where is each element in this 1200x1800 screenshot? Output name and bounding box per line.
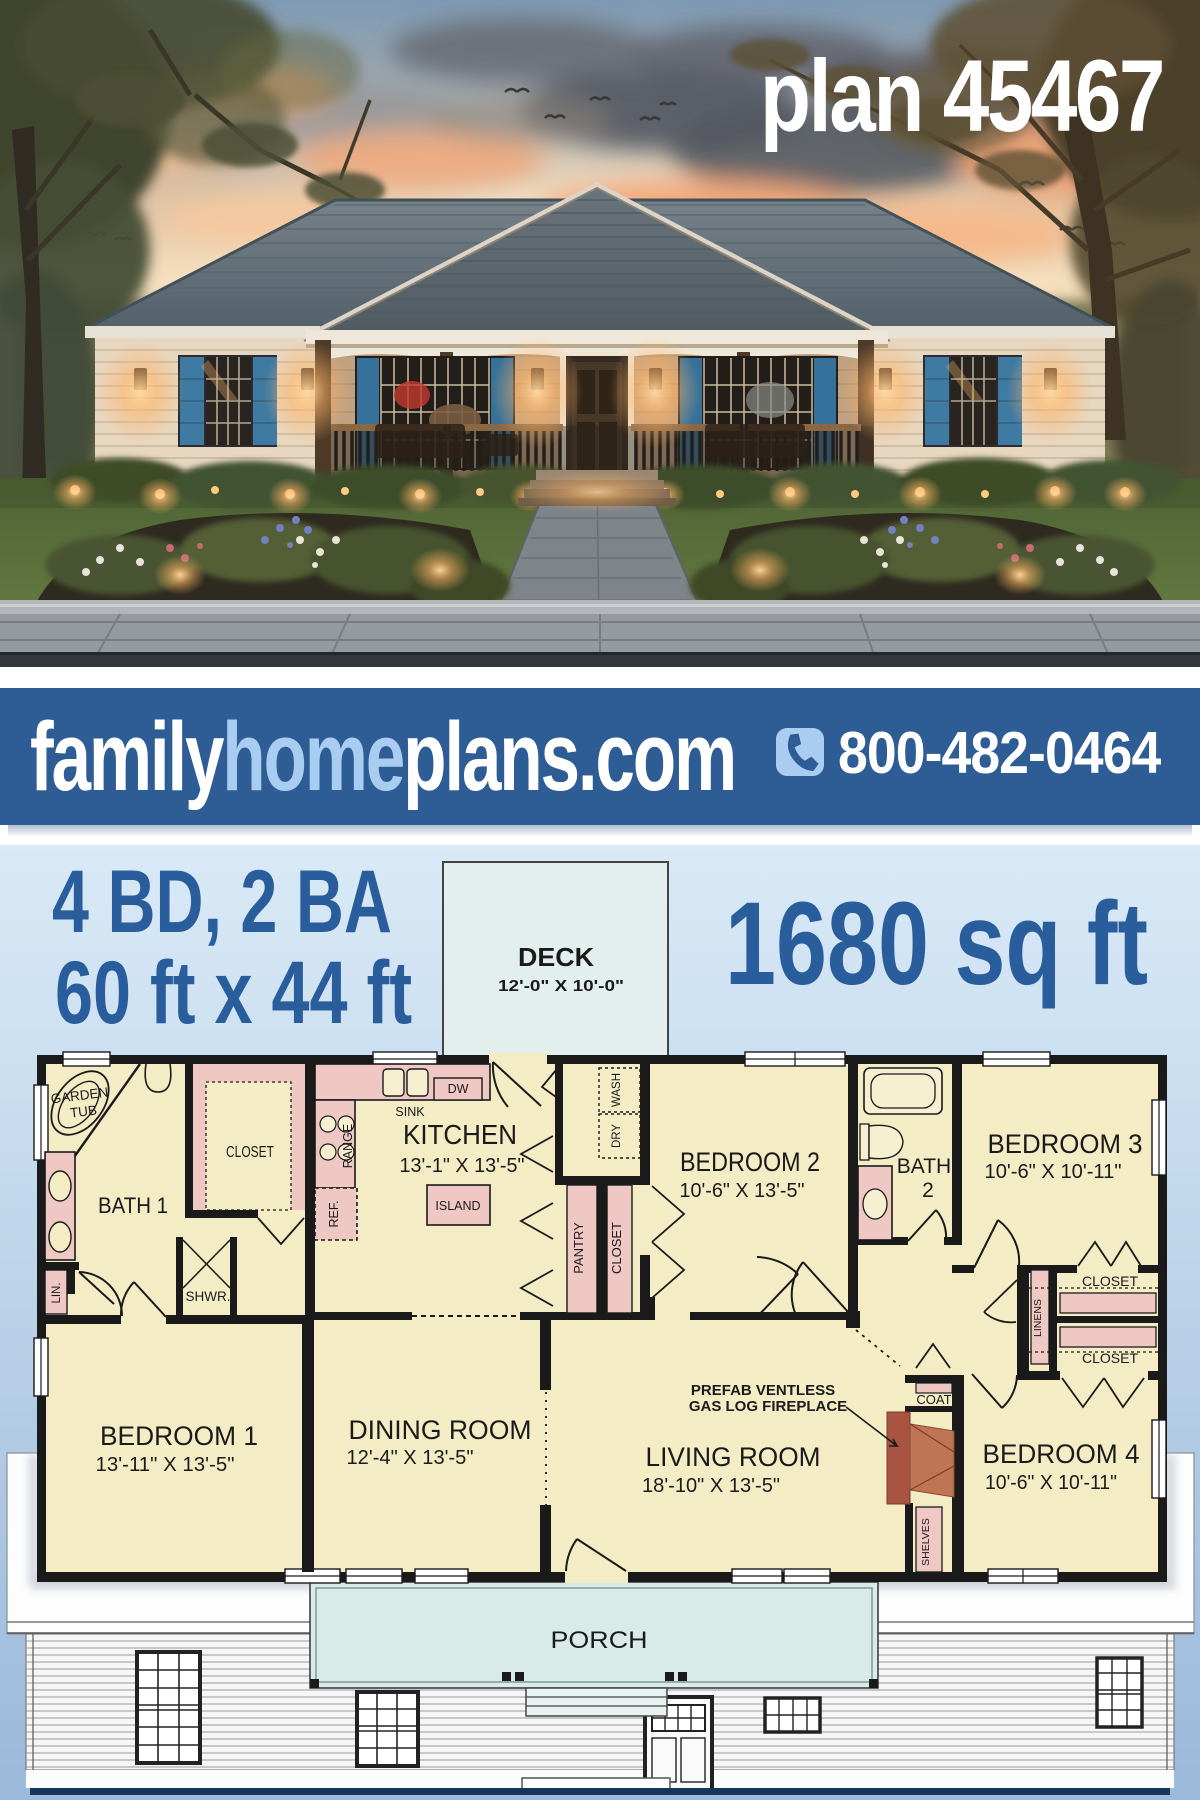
svg-text:BEDROOM 1: BEDROOM 1 xyxy=(100,1421,258,1451)
svg-text:PREFAB VENTLESS: PREFAB VENTLESS xyxy=(691,1382,835,1399)
svg-text:SHWR.: SHWR. xyxy=(186,1289,231,1304)
svg-text:BEDROOM 4: BEDROOM 4 xyxy=(983,1439,1140,1469)
svg-text:CLOSET: CLOSET xyxy=(609,1222,624,1274)
svg-text:DINING ROOM: DINING ROOM xyxy=(349,1415,532,1445)
svg-text:COAT: COAT xyxy=(916,1392,951,1407)
svg-text:10'-6" X 10'-11": 10'-6" X 10'-11" xyxy=(985,1472,1117,1494)
svg-text:CLOSET: CLOSET xyxy=(1082,1273,1138,1289)
svg-text:12'-0" X 10'-0": 12'-0" X 10'-0" xyxy=(498,978,624,995)
svg-text:BEDROOM 2: BEDROOM 2 xyxy=(680,1147,820,1177)
svg-text:LIVING ROOM: LIVING ROOM xyxy=(646,1442,821,1472)
svg-text:ISLAND: ISLAND xyxy=(435,1199,480,1213)
svg-text:REF.: REF. xyxy=(327,1200,341,1227)
svg-text:GAS LOG FIREPLACE: GAS LOG FIREPLACE xyxy=(689,1398,847,1415)
svg-text:DECK: DECK xyxy=(518,942,594,972)
svg-text:12'-4" X 13'-5": 12'-4" X 13'-5" xyxy=(347,1447,474,1469)
svg-text:DW: DW xyxy=(448,1082,469,1096)
svg-text:PORCH: PORCH xyxy=(551,1627,648,1654)
svg-text:plan 45467: plan 45467 xyxy=(760,39,1163,153)
svg-text:RANGE: RANGE xyxy=(341,1124,355,1168)
svg-text:DRY: DRY xyxy=(611,1124,623,1148)
svg-text:PANTRY: PANTRY xyxy=(571,1222,586,1274)
svg-text:LIN.: LIN. xyxy=(51,1282,63,1303)
svg-text:SINK: SINK xyxy=(395,1105,425,1119)
svg-text:BATH 1: BATH 1 xyxy=(98,1193,168,1218)
svg-text:KITCHEN: KITCHEN xyxy=(403,1119,517,1150)
svg-text:BEDROOM 3: BEDROOM 3 xyxy=(988,1129,1143,1159)
svg-text:CLOSET: CLOSET xyxy=(1082,1350,1138,1366)
svg-text:13'-1" X 13'-5": 13'-1" X 13'-5" xyxy=(400,1155,525,1177)
svg-text:18'-10" X 13'-5": 18'-10" X 13'-5" xyxy=(642,1475,780,1497)
svg-text:2: 2 xyxy=(922,1179,934,1202)
svg-text:10'-6" X 10'-11": 10'-6" X 10'-11" xyxy=(985,1161,1122,1183)
svg-text:10'-6" X 13'-5": 10'-6" X 13'-5" xyxy=(680,1180,805,1202)
svg-text:BATH: BATH xyxy=(897,1155,951,1178)
svg-text:SHELVES: SHELVES xyxy=(920,1518,932,1566)
svg-text:WASH: WASH xyxy=(611,1073,623,1107)
svg-text:LINENS: LINENS xyxy=(1032,1299,1044,1337)
svg-text:CLOSET: CLOSET xyxy=(226,1144,274,1161)
svg-text:13'-11" X 13'-5": 13'-11" X 13'-5" xyxy=(96,1454,235,1476)
